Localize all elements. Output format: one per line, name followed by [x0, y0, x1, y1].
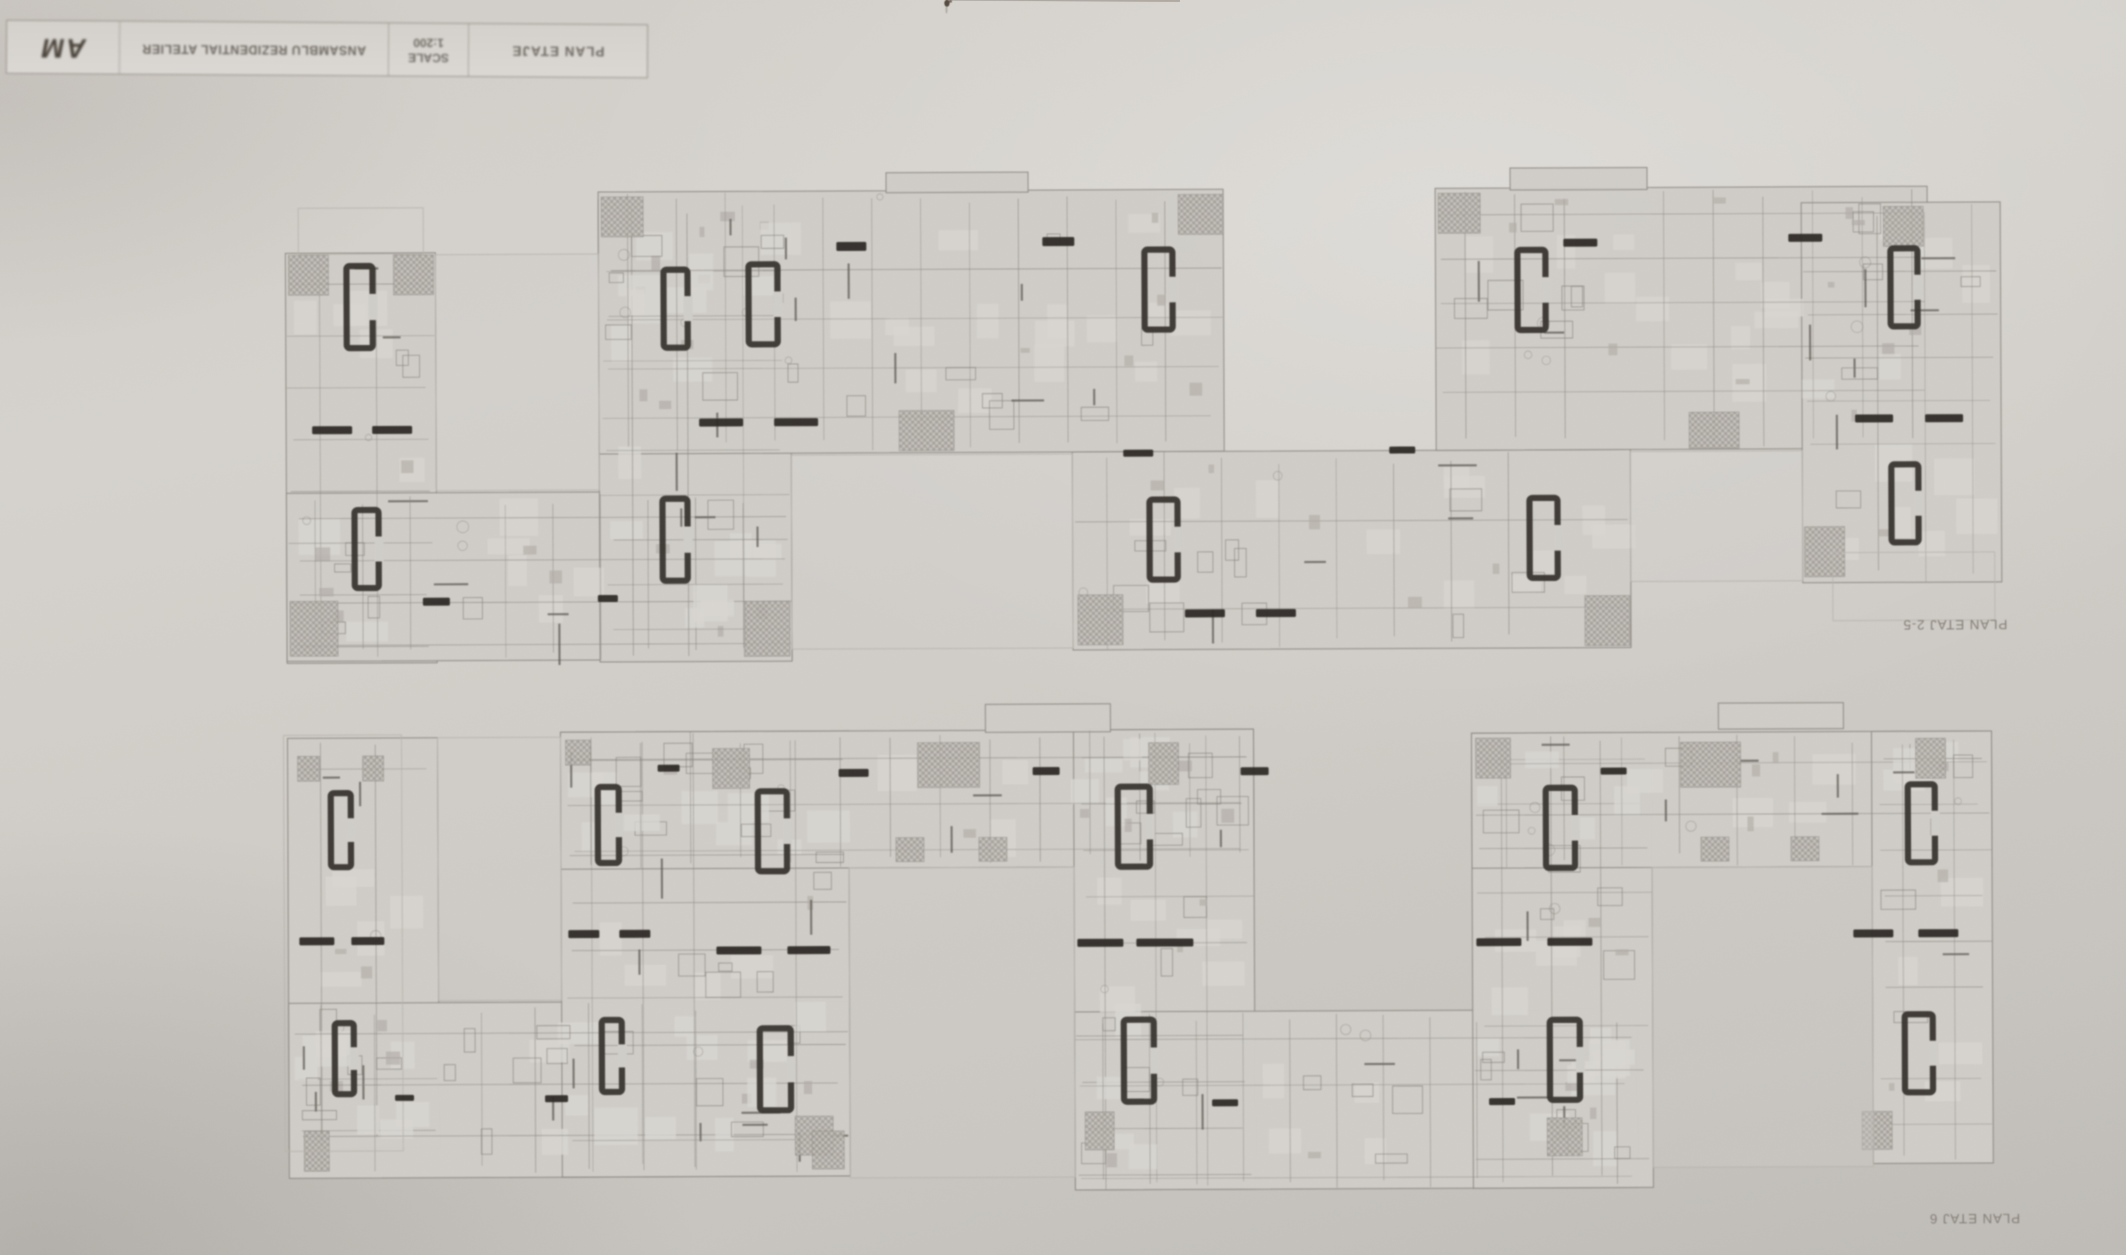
stair-core-opening [1150, 1047, 1159, 1073]
shear-wall-bar [1925, 414, 1963, 422]
hatched-balcony [601, 197, 643, 237]
hatched-balcony [1585, 596, 1630, 646]
courtyard [1630, 451, 1803, 582]
hatched-balcony [1078, 595, 1123, 645]
stair-core-opening [1913, 275, 1922, 300]
stair-core-opening [774, 291, 783, 317]
hatched-balcony [745, 601, 790, 656]
shear-wall-bar [1853, 929, 1893, 937]
stair-core-opening [375, 536, 384, 561]
plan-label: PLAN ETAJ 6 [1929, 1211, 2020, 1226]
stair-core-opening [1146, 814, 1155, 840]
courtyard [435, 254, 599, 491]
upper-plan: PLAN ETAJ 2-5 [285, 166, 2007, 666]
stair-core-opening [350, 1047, 359, 1070]
shear-wall-bar [312, 426, 352, 434]
shear-wall-bar [1389, 446, 1415, 453]
hatched-balcony [1178, 194, 1223, 234]
shear-wall-bar [568, 930, 599, 938]
hatched-balcony [298, 756, 320, 781]
building-wing [1718, 703, 1843, 730]
hatched-balcony [1689, 412, 1739, 448]
building-wing [1510, 167, 1647, 190]
shear-wall-bar [1601, 768, 1627, 775]
stair-core-opening [615, 813, 624, 837]
shear-wall-bar [395, 1095, 414, 1101]
stair-core-opening [783, 818, 792, 844]
floor-plans-drawing: PLAN ETAJ 2-5PLAN ETAJ 6 [0, 0, 2126, 1255]
stair-core-opening [1914, 491, 1923, 516]
shear-wall-bar [1185, 609, 1225, 617]
shear-wall-bar [1489, 1098, 1515, 1105]
stair-core-opening [1541, 277, 1550, 303]
hatched-balcony [1547, 1118, 1582, 1156]
shear-wall-bar [1855, 414, 1893, 422]
shear-wall-bar [716, 946, 761, 954]
photo-of-floor-plan-sheet: PLAN ETAJE SCALE 1:200 ANSAMBLU REZIDENT… [0, 0, 2126, 1255]
hatched-balcony [393, 255, 433, 295]
courtyard [791, 454, 1073, 649]
shear-wall-bar [774, 418, 818, 426]
stair-core-opening [1571, 815, 1580, 841]
hatched-balcony [1805, 527, 1845, 577]
building-wing [1072, 450, 1631, 650]
hatched-balcony [1085, 1112, 1114, 1150]
shear-wall-bar [619, 930, 650, 938]
hatched-balcony [1149, 742, 1179, 784]
hatched-balcony [713, 748, 750, 788]
shear-wall-bar [658, 765, 680, 772]
courtyard [849, 867, 1075, 1178]
hatched-balcony [899, 410, 954, 450]
shear-wall-bar [598, 595, 618, 602]
shear-wall-bar [1476, 938, 1521, 946]
hatched-balcony [288, 255, 328, 295]
shear-wall-bar [1077, 939, 1123, 947]
stair-core-opening [369, 294, 378, 320]
shear-wall-bar [1788, 234, 1822, 242]
hatched-balcony [1475, 738, 1510, 778]
lower-plan: PLAN ETAJ 6 [283, 700, 2020, 1234]
shear-wall-bar [423, 598, 450, 606]
hatched-balcony [1681, 742, 1741, 787]
hatched-balcony [1915, 738, 1945, 778]
shear-wall-bar [351, 937, 384, 945]
stair-core-opening [618, 1044, 627, 1067]
hatched-balcony [290, 601, 338, 656]
shear-wall-bar [1547, 938, 1592, 946]
building-wing [886, 172, 1028, 193]
shear-wall-bar [1136, 938, 1193, 946]
shear-wall-bar [1123, 450, 1153, 457]
shear-wall-bar [1241, 767, 1269, 775]
shear-wall-bar [1918, 929, 1958, 937]
ghost-outline [298, 208, 423, 255]
stair-core-opening [1929, 1041, 1938, 1066]
stair-core-opening [684, 296, 693, 321]
stair-core-opening [1931, 811, 1940, 836]
shear-wall-bar [787, 946, 830, 954]
hatched-balcony [1883, 206, 1923, 246]
stair-core-opening [787, 1056, 796, 1082]
shear-wall-bar [1563, 239, 1597, 247]
stair-core-opening [347, 818, 356, 842]
shear-wall-bar [1256, 609, 1296, 617]
shear-wall-bar [839, 769, 869, 777]
shear-wall-bar [372, 426, 412, 434]
shear-wall-bar [1212, 1099, 1238, 1106]
hatched-balcony [363, 756, 384, 781]
hatched-balcony [565, 740, 590, 765]
stair-core-opening [1168, 277, 1177, 303]
hatched-balcony [918, 742, 980, 787]
hatched-balcony [812, 1131, 844, 1169]
shear-wall-bar [699, 418, 743, 426]
shear-wall-bar [1033, 767, 1060, 775]
hatched-balcony [896, 838, 924, 862]
stair-core-opening [684, 526, 693, 552]
shear-wall-bar [299, 937, 334, 945]
building-wing [985, 704, 1110, 733]
stair-core-opening [1576, 1047, 1585, 1073]
hatched-balcony [979, 837, 1007, 861]
shear-wall-bar [1042, 237, 1074, 246]
plan-label: PLAN ETAJ 2-5 [1903, 617, 2008, 632]
stair-core-opening [1554, 525, 1563, 551]
courtyard [437, 737, 561, 1001]
hatched-balcony [1791, 837, 1819, 861]
shear-wall-bar [545, 1095, 568, 1102]
courtyard [1652, 866, 1873, 1167]
stair-core-opening [1174, 527, 1183, 553]
shear-wall-bar [836, 242, 866, 251]
hatched-balcony [1701, 837, 1729, 861]
hatched-balcony [1438, 193, 1480, 233]
